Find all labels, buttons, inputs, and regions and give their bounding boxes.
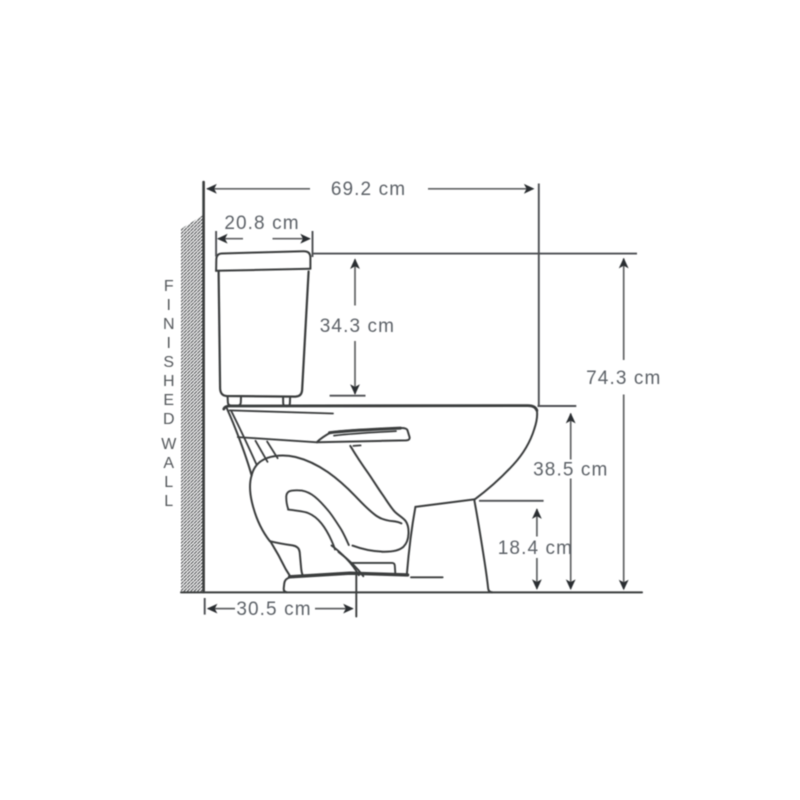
- svg-text:30.5 cm: 30.5 cm: [236, 599, 311, 620]
- svg-text:38.5 cm: 38.5 cm: [533, 460, 608, 481]
- svg-text:I: I: [167, 335, 172, 352]
- svg-text:18.4 cm: 18.4 cm: [498, 538, 573, 559]
- svg-text:69.2 cm: 69.2 cm: [331, 179, 406, 200]
- svg-text:20.8 cm: 20.8 cm: [224, 213, 299, 234]
- svg-text:34.3 cm: 34.3 cm: [320, 316, 395, 337]
- svg-text:L: L: [164, 474, 173, 491]
- svg-text:A: A: [163, 455, 174, 472]
- svg-text:E: E: [163, 392, 174, 409]
- svg-text:L: L: [164, 493, 173, 510]
- svg-text:N: N: [163, 316, 175, 333]
- svg-text:F: F: [164, 278, 174, 295]
- svg-text:S: S: [163, 354, 174, 371]
- svg-text:H: H: [163, 373, 175, 390]
- svg-text:I: I: [167, 297, 172, 314]
- svg-text:D: D: [163, 411, 175, 428]
- svg-text:W: W: [161, 436, 177, 453]
- svg-text:74.3 cm: 74.3 cm: [586, 368, 661, 389]
